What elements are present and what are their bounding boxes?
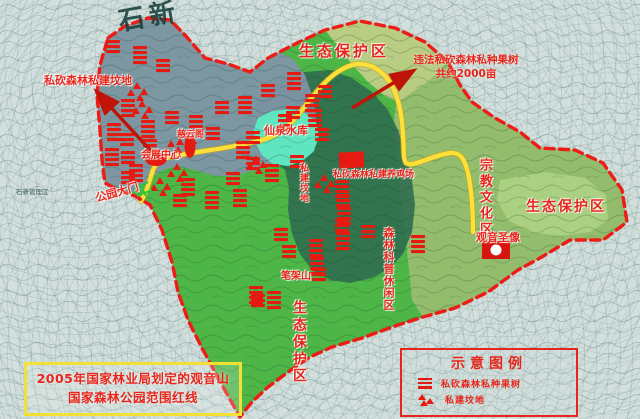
legend-box: 示意图例 私砍森林私种果树 私建坟地 <box>400 348 578 417</box>
zone-eco-right-label: 生态保护区 <box>526 196 606 216</box>
ciyun-pavilion-label: 慈云阁 <box>177 127 204 140</box>
shixin-district-label: 石新管理区 <box>16 186 49 196</box>
guanyin-statue-label: 观音圣像 <box>476 229 520 245</box>
bijia-mountain-label: 笔架山 <box>281 267 311 282</box>
exhibition-center-label: 会展中心 <box>141 146 181 161</box>
legend-title: 示意图例 <box>402 353 576 373</box>
graves-note-label: 私砍森林私建坟地 <box>44 72 132 88</box>
chicken-farm-note-label: 私砍森林私建养鸡场 <box>333 167 414 180</box>
illegal-orchard-marker <box>318 85 332 98</box>
illegal-orchard-marker <box>282 245 296 258</box>
grave-marker-icon <box>418 393 436 406</box>
zone-religious-label: 宗教文化区 <box>475 158 494 238</box>
illegal-orchard-marker <box>312 268 326 281</box>
illegal-orchard-marker <box>106 40 120 53</box>
map: 石新 石新管理区 私砍森林私建坟地 生态保护区 违法私砍森林私种果树 共约200… <box>0 0 640 419</box>
illegal-orchard-marker <box>261 84 275 97</box>
illegal-orchard-marker <box>286 106 300 119</box>
illegal-orchard-marker <box>173 194 187 207</box>
reservoir-label: 仙泉水库 <box>264 122 308 138</box>
orchard-note-label: 违法私砍森林私种果树 共约2000亩 <box>397 53 535 81</box>
illegal-orchard-marker <box>156 59 170 72</box>
legend-item-graves-label: 私建坟地 <box>445 393 485 406</box>
zone-forest-leisure-label: 森林科普休闲区 <box>380 227 396 311</box>
orchard-note-line1: 违法私砍森林私种果树 <box>397 53 535 67</box>
redline-title-line2: 国家森林公园范围红线 <box>68 389 198 408</box>
illegal-orchard-marker <box>206 127 220 140</box>
illegal-orchard-marker <box>226 172 240 185</box>
graves-vertical-label: 私建坟地 <box>297 163 310 203</box>
illegal-orchard-marker <box>361 225 375 238</box>
illegal-orchard-marker <box>121 151 135 164</box>
legend-item-orchard-label: 私砍森林私种果树 <box>441 377 521 390</box>
zone-eco-bottom-label: 生态保护区 <box>289 300 309 385</box>
redline-title-line1: 2005年国家林业局划定的观音山 <box>37 370 230 389</box>
legend-item-orchard: 私砍森林私种果树 <box>418 376 576 390</box>
illegal-orchard-marker <box>251 294 265 307</box>
orchard-marker-icon <box>418 376 432 390</box>
redline-title-box: 2005年国家林业局划定的观音山 国家森林公园范围红线 <box>24 362 242 416</box>
legend-item-graves: 私建坟地 <box>418 393 576 406</box>
illegal-orchard-marker <box>315 128 329 141</box>
illegal-orchard-marker <box>335 219 349 232</box>
zone-eco-top-label: 生态保护区 <box>299 40 389 61</box>
illegal-orchard-marker <box>215 101 229 114</box>
illegal-orchard-marker <box>336 194 350 207</box>
illegal-orchard-marker <box>274 228 288 241</box>
orchard-note-line2: 共约2000亩 <box>397 67 535 81</box>
illegal-orchard-marker <box>165 111 179 124</box>
illegal-orchard-marker <box>120 133 134 146</box>
